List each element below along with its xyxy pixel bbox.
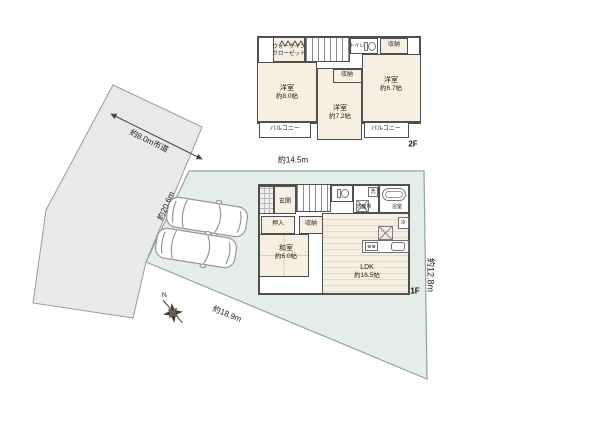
- stairs-2f: [305, 37, 350, 62]
- bedroom-right-label: 洋室約6.7帖: [380, 76, 402, 94]
- walkin-closet-label: ウォークインクローゼット: [272, 44, 305, 58]
- stove-icon: [365, 242, 378, 251]
- toilet-icon: [368, 42, 376, 51]
- storage-1f-label: 収納: [305, 221, 317, 229]
- balcony-left-label: バルコニー: [270, 126, 300, 134]
- sink-icon: [391, 242, 405, 251]
- floor1-tag: 1F: [410, 287, 419, 296]
- storage-top-label: 収納: [388, 42, 400, 50]
- bathtub-icon: [385, 191, 403, 198]
- compass-icon: N: [160, 290, 184, 325]
- floorplan-canvas: N ウォークインクローゼット トイレ 収納 収納 洋室約8.0帖 洋室約7.2帖…: [0, 0, 600, 424]
- floor2-tag: 2F: [408, 140, 417, 149]
- toilet-icon: [341, 189, 349, 198]
- toilet-room-1f: [331, 185, 353, 202]
- entrance-tile: [259, 186, 274, 214]
- washroom-label: 洗面所: [356, 204, 371, 211]
- cupboard-icon: [378, 226, 393, 240]
- storage-mid-label: 収納: [341, 72, 353, 80]
- site-top-dim: 約14.5m: [278, 155, 308, 166]
- oshiire-label: 押入: [272, 221, 284, 229]
- ldk-label: LDK約16.5帖: [354, 263, 380, 281]
- entrance-label: 玄関: [279, 199, 291, 207]
- toilet-label-2f: トイレ: [349, 43, 364, 50]
- bathtub-icon: [382, 188, 406, 201]
- bathroom-label: 浴室: [392, 204, 402, 211]
- stairs-1f: [296, 184, 331, 212]
- site-right-dim: 約12.8m: [425, 258, 438, 292]
- ldk-room: [322, 213, 409, 294]
- washer-label: 洗: [370, 189, 375, 196]
- fridge-label: 冷: [400, 220, 405, 227]
- bedroom-left-label: 洋室約8.0帖: [276, 84, 298, 102]
- compass-north-label: N: [161, 292, 167, 300]
- bedroom-mid-label: 洋室約7.2帖: [329, 104, 351, 122]
- balcony-right-label: バルコニー: [371, 126, 401, 134]
- japanese-room-label: 和室約6.0帖: [275, 244, 297, 262]
